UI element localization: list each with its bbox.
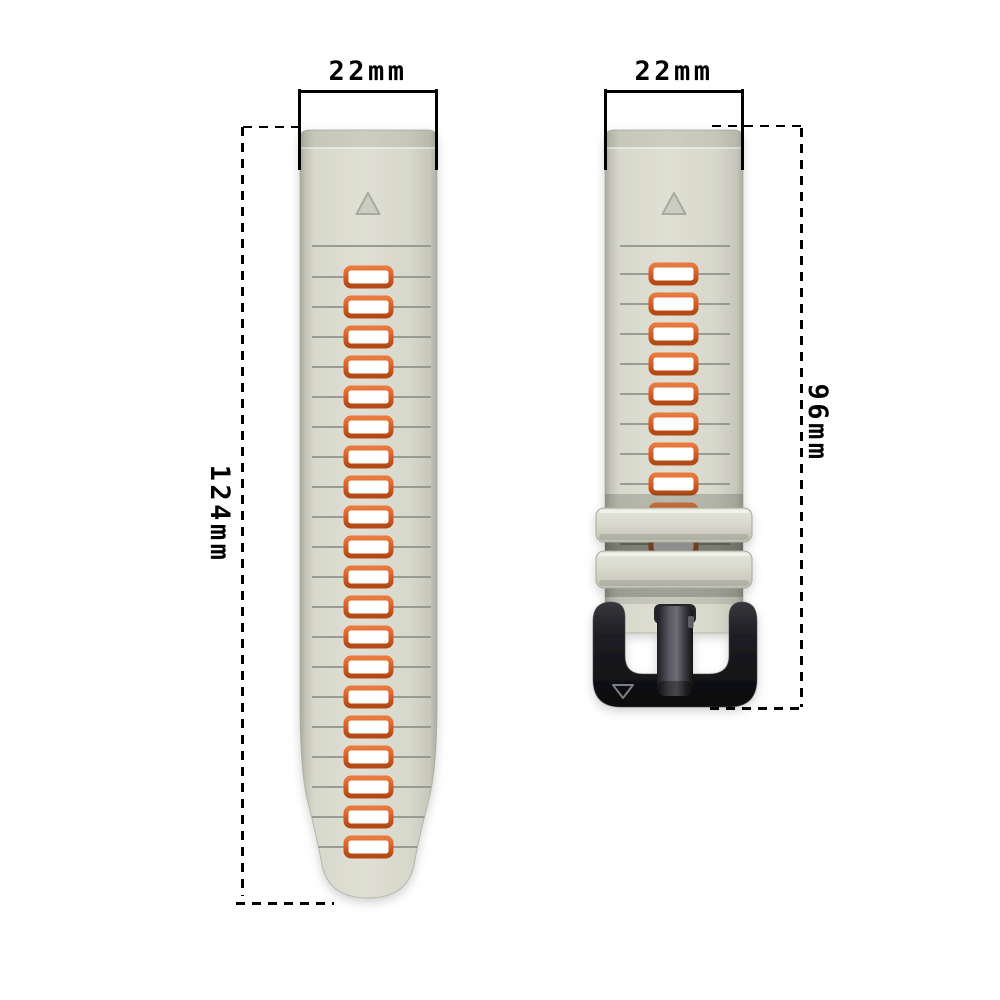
dimension-line-right-width	[605, 90, 743, 93]
strap-slot	[651, 265, 696, 283]
strap-slot	[346, 568, 391, 586]
strap-slot	[346, 478, 391, 496]
right-strap-lug-cap	[605, 130, 743, 147]
straps-illustration	[0, 0, 1000, 1000]
extension-connector-left-bottom	[236, 902, 334, 905]
left-strap-lug-cap	[300, 130, 437, 147]
strap-slot	[651, 325, 696, 343]
buckle	[593, 602, 757, 707]
dimension-label-left-length: 124mm	[202, 429, 236, 599]
strap-slot	[346, 778, 391, 796]
strap-slot	[651, 475, 696, 493]
strap-slot	[651, 295, 696, 313]
right-strap	[593, 130, 757, 707]
strap-slot	[346, 718, 391, 736]
strap-slot	[346, 838, 391, 856]
strap-slot	[346, 748, 391, 766]
strap-slot	[346, 628, 391, 646]
keeper-loop-2	[596, 551, 752, 588]
strap-slot	[651, 445, 696, 463]
strap-slot	[346, 388, 391, 406]
strap-slot	[346, 418, 391, 436]
buckle-prong	[654, 604, 696, 696]
keeper-loop-1	[596, 508, 752, 542]
strap-slot	[346, 298, 391, 316]
dimension-tick	[435, 89, 438, 170]
dimension-line-left-width	[299, 90, 437, 93]
product-dimension-diagram: 22mm 22mm 124mm 96mm	[0, 0, 1000, 1000]
strap-slot	[346, 358, 391, 376]
dimension-tick	[741, 89, 744, 170]
dimension-tick	[298, 89, 301, 170]
strap-slot	[651, 415, 696, 433]
strap-slot	[346, 508, 391, 526]
strap-slot	[346, 688, 391, 706]
strap-slot	[346, 328, 391, 346]
groove-line	[620, 245, 730, 247]
strap-slot	[346, 448, 391, 466]
strap-slot	[346, 538, 391, 556]
strap-slot	[651, 385, 696, 403]
strap-slot	[346, 268, 391, 286]
extension-line-left-length	[241, 127, 244, 896]
groove-line	[312, 245, 431, 247]
strap-slot	[346, 658, 391, 676]
extension-connector-right-top	[712, 125, 805, 128]
strap-slot	[651, 355, 696, 373]
dimension-label-right-width: 22mm	[589, 55, 759, 89]
extension-connector-left-top	[243, 126, 301, 129]
dimension-label-left-width: 22mm	[283, 55, 453, 89]
extension-connector-right-bottom	[710, 707, 805, 710]
strap-slot	[346, 598, 391, 616]
dimension-tick	[604, 89, 607, 170]
strap-slot	[346, 808, 391, 826]
dimension-label-right-length: 96mm	[800, 338, 834, 508]
left-strap	[300, 130, 437, 898]
